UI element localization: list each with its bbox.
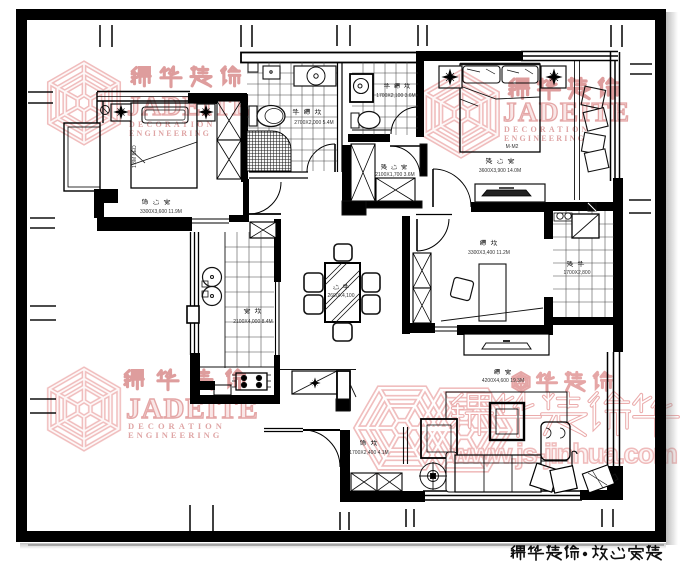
svg-text:www.js-jinhua.com: www.js-jinhua.com <box>449 438 678 469</box>
svg-text:2100X4,000 8.4M: 2100X4,000 8.4M <box>233 319 272 325</box>
svg-text:DECORATION: DECORATION <box>129 120 216 129</box>
svg-text:JADEITE: JADEITE <box>127 91 251 121</box>
svg-text:3300X3,400 11.2M: 3300X3,400 11.2M <box>468 250 510 256</box>
svg-text:M·M2: M·M2 <box>506 144 519 150</box>
svg-text:2100X1,700 3.6M: 2100X1,700 3.6M <box>375 172 414 178</box>
svg-text:1700X2,800: 1700X2,800 <box>564 270 591 276</box>
svg-text:3600X3,900 14.0M: 3600X3,900 14.0M <box>479 168 521 174</box>
svg-text:3300X3,600 11.9M: 3300X3,600 11.9M <box>140 209 182 215</box>
svg-text:1700X2,100 3.6M: 1700X2,100 3.6M <box>376 93 415 99</box>
svg-text:ENGINEERING: ENGINEERING <box>504 134 586 143</box>
svg-text:2700X2,000 5.4M: 2700X2,000 5.4M <box>294 120 333 126</box>
svg-text:JADEITE: JADEITE <box>503 97 631 127</box>
svg-text:DECORATION: DECORATION <box>504 125 591 134</box>
svg-text:ENGINEERING: ENGINEERING <box>128 430 222 440</box>
svg-text:1.8M BED: 1.8M BED <box>132 145 138 168</box>
svg-text:4200X4,600 19.3M: 4200X4,600 19.3M <box>482 378 524 384</box>
svg-text:1700X2,400 4.1M: 1700X2,400 4.1M <box>349 450 388 456</box>
svg-text:ENGINEERING: ENGINEERING <box>129 129 211 138</box>
svg-text:2600X4,100: 2600X4,100 <box>328 293 355 299</box>
